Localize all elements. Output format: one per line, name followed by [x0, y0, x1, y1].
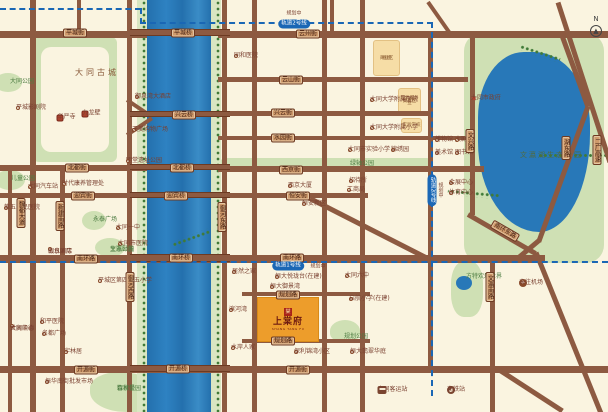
poi-dot: 名都广场 — [42, 332, 46, 336]
poi-dot: 山水国际假日酒店 — [48, 247, 52, 251]
road-vertical — [470, 33, 475, 215]
poi-label: 美术馆 — [435, 150, 453, 157]
street-badge: 规划路 — [271, 337, 295, 346]
poi-label: 时代康养管理处 — [62, 181, 104, 188]
poi-label: 名都广场 — [42, 331, 66, 338]
poi-label: 大同市政府 — [471, 96, 501, 103]
street-badge: 兴云桥 — [172, 111, 196, 120]
landmark-block-label: 商业区 — [380, 56, 394, 61]
poi-dot: 时代康养管理处 — [62, 182, 66, 186]
poi-label: 高铁站 — [447, 387, 465, 394]
street-badge: 文瀛南路 — [486, 272, 495, 302]
river-water — [147, 0, 211, 412]
poi-dot: 工商局 — [347, 188, 351, 192]
poi-label: 方特欢乐世界 — [466, 274, 502, 281]
metro-planning-note: 规划中 — [438, 183, 445, 198]
poi-dot: 水岸人家 — [231, 346, 235, 350]
poi-dot: 同和医院 — [234, 54, 238, 58]
poi-dot: 平城影剧院 — [16, 106, 20, 110]
poi-dot: 恒大御景湾 — [270, 285, 274, 289]
poi-label: 水岸人家 — [231, 345, 255, 352]
poi-label: 恒安新区 — [302, 201, 326, 208]
poi-dot: 大同汽车站 — [28, 185, 32, 189]
project-name: 上棠府 — [273, 317, 303, 327]
road-diagonal — [496, 366, 564, 412]
poi-dot: 图书馆 — [455, 151, 459, 155]
poi-label: 同和医院 — [234, 53, 258, 60]
poi-label: 大同公园 — [10, 79, 34, 86]
poi-dot: 大同市实验小学 — [348, 148, 352, 152]
street-badge: 南环路 — [74, 255, 98, 264]
poi-label: 儿童公园 — [11, 176, 35, 183]
project-seal-icon: 棠 — [284, 308, 292, 316]
street-badge: 文兴路 — [466, 129, 475, 153]
poi-label: 体育中心 — [449, 190, 473, 197]
poi-plane: ✈去往机场 — [519, 279, 527, 287]
poi-dot: 平城区第四十五小学 — [98, 279, 102, 283]
poi-dot: 保利锦湾小区 — [294, 350, 298, 354]
poi-dot: 体育中心 — [449, 191, 453, 195]
road-horizontal — [218, 31, 608, 38]
poi-dot: 大同一中 — [116, 226, 120, 230]
poi-label: 绿轴公园 — [350, 161, 374, 168]
poi-dot: 会展中心 — [449, 181, 453, 185]
street-badge: 恒安街 — [286, 192, 310, 201]
poi-dot: 天美购物广场 — [132, 128, 136, 132]
poi-temple: 华严寺 — [58, 116, 63, 121]
poi-dot: 宇林居 — [64, 350, 68, 354]
metro-line-badge: 轨道2号线 — [428, 174, 437, 206]
poi-bus: 大同客运站 — [378, 386, 387, 394]
poi-dot: 振华南街批发市场 — [45, 380, 49, 384]
poi-label: 大同大学附属医院 — [370, 97, 418, 104]
street-badge: 开源桥 — [166, 365, 190, 374]
street-badge: 兴云街 — [271, 109, 295, 118]
poi-label: 大同大学附属小学 — [370, 125, 418, 132]
poi-label: 九龙壁 — [83, 111, 101, 118]
street-badge: 平城街 — [63, 29, 87, 38]
street-badge: 云州街 — [296, 30, 320, 39]
street-badge: 云山街 — [279, 76, 303, 85]
street-badge: 御河西路 — [126, 272, 135, 302]
river-trees — [142, 0, 146, 412]
poi-label: 大同汽车站 — [28, 184, 58, 191]
poi-label: 启航小学(在建) — [349, 296, 390, 303]
street-badge: 御河东路 — [218, 202, 227, 232]
poi-dot: 和平医院 — [40, 320, 44, 324]
poi-label: 会展中心 — [449, 180, 473, 187]
poi-dot: 居然之家 — [232, 270, 236, 274]
street-badge: 北都街 — [65, 164, 89, 173]
poi-dot: 恒大悦珑台(在建) — [275, 275, 279, 279]
poi-label: 恒大翡翠华庭 — [350, 349, 386, 356]
metro-line-badge: 轨道2号线 — [278, 20, 310, 29]
road-vertical — [330, 0, 334, 33]
poi-dot: 大同大学附属小学 — [370, 126, 374, 130]
street-badge: 南环桥 — [169, 254, 193, 263]
poi-dot: 滨河湾 — [229, 308, 233, 312]
poi-label: 工商局 — [347, 187, 365, 194]
road-diagonal — [534, 252, 604, 412]
street-badge: 北都桥 — [170, 164, 194, 173]
compass-arrow-icon: ▲ — [590, 25, 602, 37]
street-badge: 迎宾桥 — [164, 192, 188, 201]
poi-dot: 大同凯德世贸中心 — [10, 324, 14, 328]
metro-planning-note: 规划中 — [310, 263, 325, 270]
street-badge: 开源街 — [74, 366, 98, 375]
poi-dot: 大剧院 — [455, 138, 459, 142]
poi-temple: 九龙壁 — [83, 112, 88, 117]
compass-north-label: N — [593, 15, 598, 23]
poi-label: 去往机场 — [519, 280, 543, 287]
landmark-block: 规划商业区 — [373, 40, 400, 76]
street-badge: 二广高速 — [593, 135, 602, 165]
metro-line — [431, 22, 433, 396]
poi-dot: 大同六中 — [345, 274, 349, 278]
poi-label: 锦绣园 — [391, 147, 409, 154]
poi-label: 和平医院 — [40, 319, 64, 326]
city-map: 棠 上棠府 SHANG TANG FU N ▲ 轨道2号线规划中轨道1号线规划中… — [0, 0, 608, 412]
street-badge: 湖东路 — [562, 136, 571, 160]
poi-dot: 西京大厦 — [288, 184, 292, 188]
metro-planning-note: 规划中 — [286, 10, 301, 17]
project-logo-block: 棠 上棠府 SHANG TANG FU — [257, 297, 319, 342]
poi-label: 规划公园 — [344, 334, 368, 341]
poi-label: 御泉湾大酒店 — [135, 94, 171, 101]
poi-label: 文瀛湖生态公园 — [520, 152, 583, 159]
poi-dot: 启航小学(在建) — [349, 297, 353, 301]
poi-label: 招待所 — [349, 178, 367, 185]
poi-dot: 恒安新区 — [302, 202, 306, 206]
poi-label: 大同一中 — [116, 225, 140, 232]
poi-label: 博物馆 — [435, 137, 453, 144]
metro-line-badge: 轨道1号线 — [272, 262, 304, 271]
poi-label: 华严寺 — [58, 115, 76, 122]
street-badge: 西京街 — [279, 166, 303, 175]
poi-dot: 招待所 — [349, 179, 353, 183]
project-caption: SHANG TANG FU — [272, 328, 305, 331]
poi-label: 振华南街批发市场 — [45, 379, 93, 386]
road-diagonal — [309, 196, 432, 262]
poi-dot: 第五人民医院 — [4, 206, 8, 210]
poi-dot: 明堂遗址公园 — [126, 159, 130, 163]
street-badge: 开源街 — [286, 366, 310, 375]
poi-label: 明堂遗址公园 — [126, 158, 162, 165]
street-badge: 水园街 — [271, 134, 295, 143]
road-vertical — [127, 0, 132, 412]
poi-label: 西京大厦 — [288, 183, 312, 190]
poi-label: 保利锦湾小区 — [294, 349, 330, 356]
poi-train: 高铁站 — [447, 386, 455, 394]
poi-label: 大同六中 — [345, 273, 369, 280]
street-badge: 平城桥 — [171, 29, 195, 38]
poi-label: 大同市实验小学 — [348, 147, 390, 154]
poi-dot: 恒大翡翠华庭 — [350, 350, 354, 354]
poi-dot: 博物馆 — [435, 138, 439, 142]
poi-dot: 美术馆 — [435, 151, 439, 155]
poi-label: 宇林居 — [64, 349, 82, 356]
poi-dot: 大同大学附属医院 — [370, 98, 374, 102]
poi-label: 天美购物广场 — [132, 127, 168, 134]
metro-line — [0, 8, 141, 10]
poi-label: 恒大御景湾 — [270, 284, 300, 291]
poi-label: 居然之家 — [232, 269, 256, 276]
street-badge: 魏都大道 — [17, 198, 26, 228]
street-badge: 规划路 — [276, 291, 300, 300]
poi-label: 恒大悦珑台(在建) — [275, 274, 322, 281]
road-vertical — [8, 165, 12, 412]
street-badge: 迎宾街 — [71, 192, 95, 201]
poi-label: 滨河湾 — [229, 307, 247, 314]
poi-label: 平城影剧院 — [16, 105, 46, 112]
poi-dot: 御泉湾大酒店 — [135, 95, 139, 99]
poi-star: ★大同市政府 — [471, 96, 477, 103]
poi-label: 永泰广场 — [93, 217, 117, 224]
compass: N ▲ — [588, 6, 604, 37]
poi-label: 大同古城 — [75, 70, 119, 77]
park-inner-area — [41, 47, 109, 152]
street-badge: 新建南路 — [56, 201, 65, 231]
poi-dot: 锦绣园 — [391, 148, 395, 152]
